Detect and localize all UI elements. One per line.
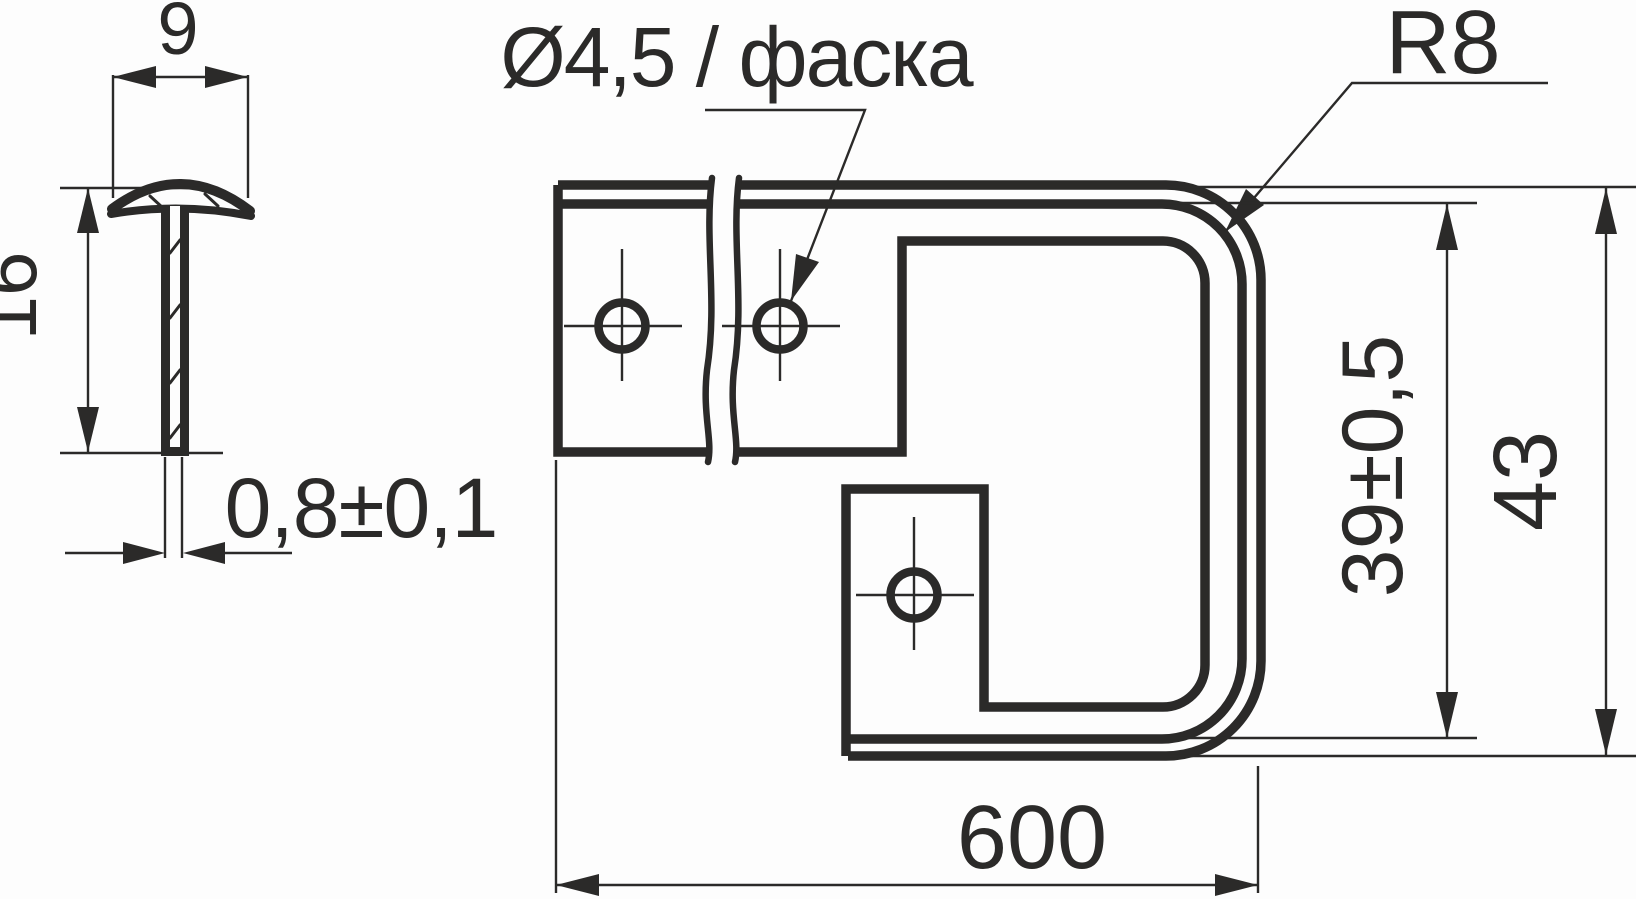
- callout-label-radius: R8: [1385, 0, 1500, 93]
- arrowhead-right: [1215, 874, 1258, 896]
- dim-label-wall-thickness: 0,8±0,1: [225, 461, 498, 555]
- dim-label-cap-width: 9: [157, 0, 198, 70]
- dim-label-profile-height: 16: [0, 252, 53, 341]
- dimension-cap-width: 9: [113, 0, 248, 198]
- dimension-profile-height: 16: [0, 188, 223, 453]
- arrowhead-down: [77, 407, 99, 452]
- mounting-hole: [856, 517, 974, 650]
- dimension-wall-thickness: 0,8±0,1: [65, 457, 497, 564]
- arrowhead-up: [1595, 188, 1617, 234]
- dim-label-length: 600: [957, 788, 1107, 888]
- cross-section-view: 9 16 0,8±0,1: [0, 0, 497, 564]
- arrowhead-up: [77, 188, 99, 233]
- leader-arrowhead: [791, 254, 819, 301]
- arrowhead-left: [113, 66, 156, 88]
- leader-line: [1225, 83, 1548, 232]
- arrowhead-left: [556, 874, 599, 896]
- arrowhead-right: [123, 542, 165, 564]
- arrowhead-down: [1595, 709, 1617, 755]
- dim-label-inner-height: 39±0,5: [1325, 335, 1421, 597]
- arrowhead-down: [1436, 692, 1458, 738]
- technical-drawing-canvas: 9 16 0,8±0,1: [0, 0, 1636, 899]
- callout-label-hole: Ø4,5 / фаска: [500, 10, 974, 104]
- dimension-length: 600: [556, 460, 1258, 896]
- arrowhead-right: [205, 66, 248, 88]
- profile-inner-contour: [558, 185, 1205, 756]
- profile-outer-contour: [558, 185, 1261, 756]
- callout-corner-radius: R8: [1225, 0, 1548, 232]
- dim-label-overall-height: 43: [1476, 431, 1576, 531]
- arrowhead-up: [1436, 204, 1458, 250]
- arrowhead-left: [183, 542, 225, 564]
- main-view: Ø4,5 / фаска R8 39±0,5 43: [500, 0, 1636, 896]
- mounting-hole: [564, 249, 682, 381]
- drawing-sheet: 9 16 0,8±0,1: [0, 0, 1636, 899]
